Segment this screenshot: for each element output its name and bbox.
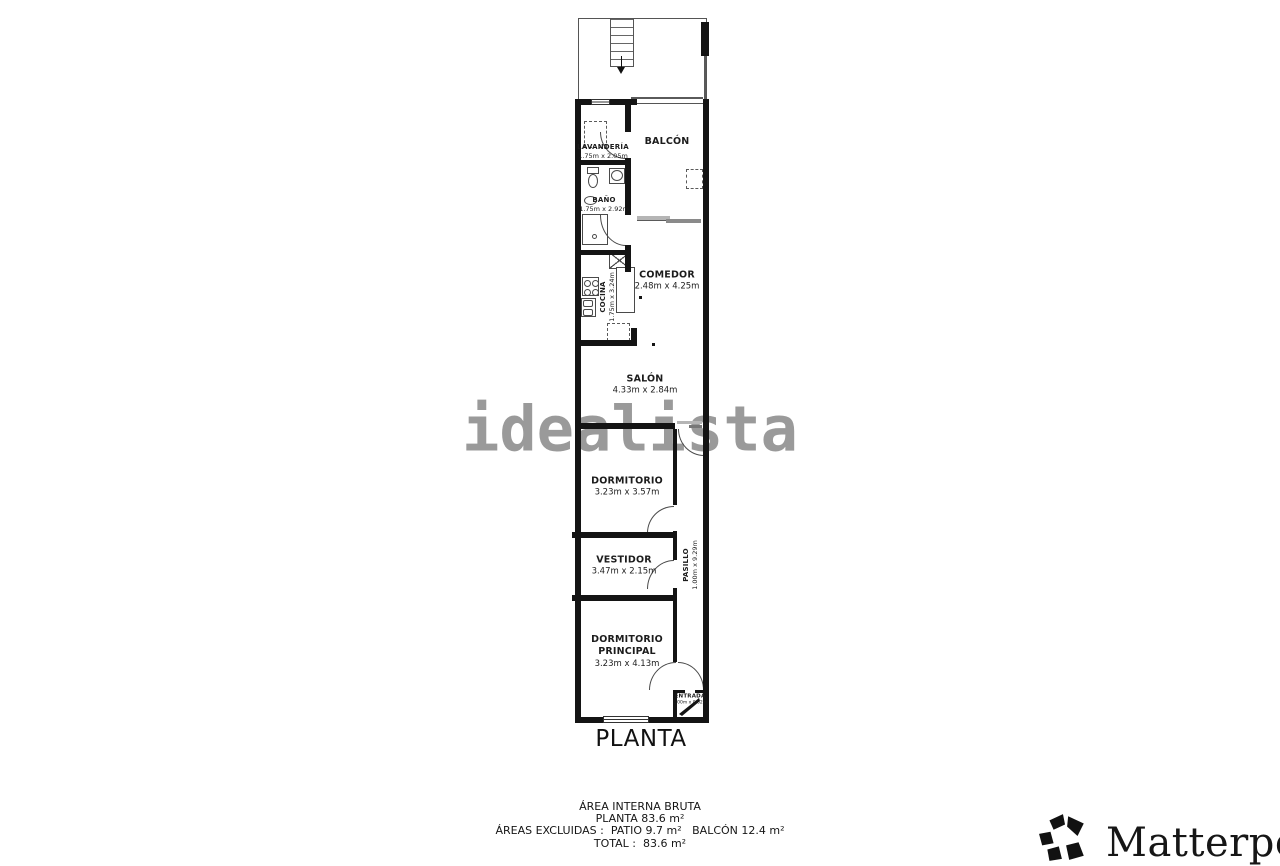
stove-burners-icon [584, 280, 598, 296]
kitchen-island-icon [616, 267, 635, 313]
window [591, 99, 610, 105]
room-dormitorio: DORMITORIO 3.23m x 3.57m [591, 475, 663, 498]
door-arc [647, 506, 674, 533]
idealista-watermark: idealista [462, 393, 798, 466]
matterport-logo-icon [1038, 813, 1090, 861]
plan-title: PLANTA [595, 726, 686, 752]
room-dims: 1.00m x 9.29m [691, 540, 699, 590]
wall-segment [701, 22, 709, 56]
room-dims: 3.23m x 3.57m [591, 488, 663, 499]
stairs-arrow-icon [617, 67, 625, 74]
marker-dot [645, 424, 648, 427]
wall-segment [575, 250, 631, 255]
room-name: VESTIDOR [592, 554, 657, 566]
stairs-icon [610, 18, 634, 67]
toilet-icon [588, 174, 598, 188]
kitchen-sink-bowl-icon [583, 300, 593, 307]
wall-segment [572, 595, 675, 601]
balcony-parapet [631, 97, 703, 99]
shower-drain-icon [592, 234, 597, 239]
room-name: LAVANDERÍA [577, 143, 629, 152]
area-summary: ÁREA INTERNA BRUTA PLANTA 83.6 m² ÁREAS … [330, 801, 950, 850]
room-vestidor: VESTIDOR 3.47m x 2.15m [592, 554, 657, 577]
patio-outline [578, 18, 707, 104]
room-name: COMEDOR [635, 269, 700, 281]
wall-thin [704, 54, 706, 99]
wall-segment [575, 423, 675, 429]
wall-segment [575, 340, 637, 346]
sliding-door [677, 421, 702, 424]
marker-dot [655, 718, 658, 721]
summary-line: TOTAL : 83.6 m² [330, 838, 950, 850]
room-entrada: ENTRADA 1.00m x 0.62m [673, 694, 707, 707]
sink-icon [611, 170, 623, 181]
room-name: COCINA [599, 272, 608, 322]
room-dormitorio-principal: DORMITORIO PRINCIPAL 3.23m x 4.13m [589, 634, 665, 670]
room-balcon: BALCÓN [645, 136, 690, 148]
room-comedor: COMEDOR 2.48m x 4.25m [635, 269, 700, 292]
matterport-logo: Matterport® [1038, 813, 1280, 863]
marker-dot [647, 596, 650, 599]
wall-segment [625, 99, 631, 132]
wall-left [575, 99, 581, 723]
room-dims: 1.75m x 2.05m [577, 152, 629, 160]
fridge-icon [607, 323, 630, 341]
sliding-door [666, 219, 701, 223]
wall-segment [572, 532, 675, 538]
marker-dot [647, 533, 650, 536]
room-name: DORMITORIO PRINCIPAL [589, 634, 665, 659]
floorplan-page: { "plan": { "title": "PLANTA", "watermar… [0, 0, 1280, 853]
room-name: SALÓN [613, 373, 678, 385]
room-pasillo: PASILLO 1.00m x 9.29m [682, 540, 700, 590]
kitchen-sink-bowl-icon [583, 309, 593, 316]
room-name: BALCÓN [645, 136, 690, 148]
marker-dot [639, 296, 642, 299]
room-dims: 4.33m x 2.84m [613, 386, 678, 397]
summary-line: ÁREAS EXCLUIDAS : PATIO 9.7 m² BALCÓN 12… [330, 825, 950, 837]
room-dims: 1.75m x 3.24m [608, 272, 616, 322]
room-dims: 1.75m x 2.92m [579, 205, 629, 213]
room-lavanderia: LAVANDERÍA 1.75m x 2.05m [577, 143, 629, 161]
room-dims: 3.23m x 4.13m [589, 659, 665, 670]
room-name: PASILLO [682, 540, 691, 590]
marker-dot [652, 343, 655, 346]
room-cocina: COCINA 1.75m x 3.24m [599, 272, 617, 322]
window [603, 716, 649, 723]
toilet-tank-icon [587, 167, 599, 174]
sliding-door [689, 425, 702, 428]
room-dims: 1.00m x 0.62m [673, 701, 707, 707]
ac-unit-icon [686, 169, 703, 189]
matterport-logo-text: Matterport® [1106, 823, 1280, 863]
wall-pasillo [673, 429, 677, 505]
room-name: DORMITORIO [591, 475, 663, 487]
room-dims: 2.48m x 4.25m [635, 282, 700, 293]
wall-right [703, 99, 709, 723]
door-arc [678, 662, 704, 690]
room-bano: BAÑO 1.75m x 2.92m [579, 196, 629, 214]
room-name: BAÑO [579, 196, 629, 205]
room-salon: SALÓN 4.33m x 2.84m [613, 373, 678, 396]
brand-name: Matterport [1106, 820, 1280, 866]
room-dims: 3.47m x 2.15m [592, 567, 657, 578]
